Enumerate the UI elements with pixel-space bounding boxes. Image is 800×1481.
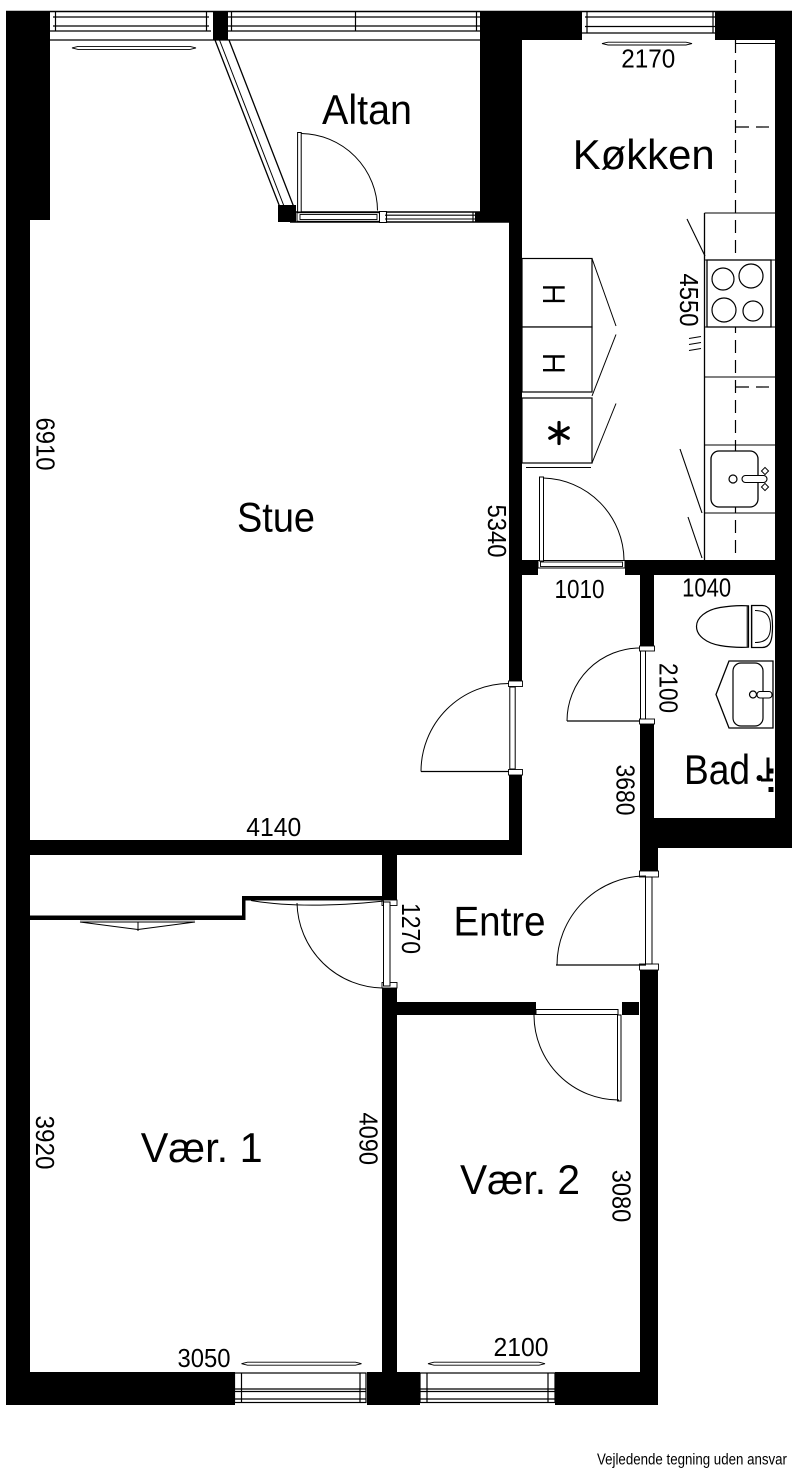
svg-text:Bad: Bad bbox=[684, 746, 750, 793]
svg-text:3920: 3920 bbox=[30, 1116, 60, 1170]
svg-text:1010: 1010 bbox=[555, 574, 605, 604]
svg-text:2100: 2100 bbox=[494, 1332, 549, 1362]
svg-text:3080: 3080 bbox=[607, 1170, 637, 1223]
svg-text:2170: 2170 bbox=[621, 44, 675, 74]
svg-text:4140: 4140 bbox=[246, 812, 301, 842]
svg-text:4090: 4090 bbox=[354, 1112, 384, 1165]
svg-text:Vejledende tegning uden ansvar: Vejledende tegning uden ansvar bbox=[597, 1452, 787, 1469]
svg-text:Altan: Altan bbox=[322, 86, 412, 133]
svg-text:3680: 3680 bbox=[611, 765, 641, 816]
svg-text:5340: 5340 bbox=[482, 505, 512, 558]
svg-text:Køkken: Køkken bbox=[573, 131, 715, 178]
svg-text:1040: 1040 bbox=[682, 573, 731, 603]
svg-text:4550: 4550 bbox=[674, 274, 704, 327]
svg-text:3050: 3050 bbox=[178, 1343, 231, 1373]
svg-text:2100: 2100 bbox=[654, 663, 684, 713]
svg-text:Entre: Entre bbox=[454, 898, 546, 945]
svg-text:1270: 1270 bbox=[396, 903, 426, 954]
svg-text:Vær. 1: Vær. 1 bbox=[141, 1124, 263, 1171]
svg-text:6910: 6910 bbox=[31, 418, 61, 471]
svg-text:Stue: Stue bbox=[237, 494, 315, 541]
svg-text:Vær. 2: Vær. 2 bbox=[460, 1156, 580, 1203]
